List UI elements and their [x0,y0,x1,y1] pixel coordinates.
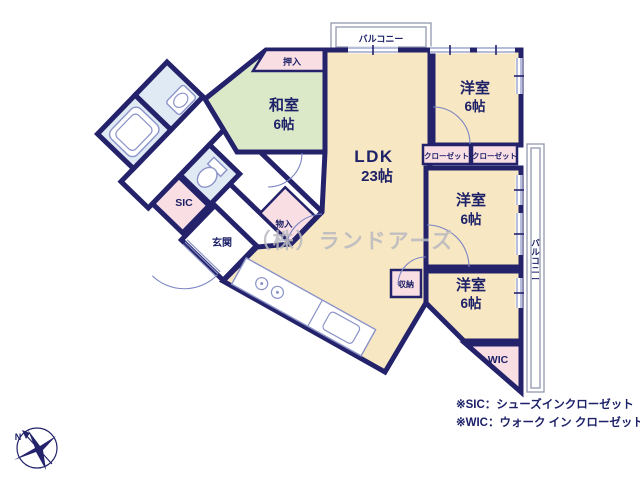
floor-plan-svg: バルコニー [0,0,640,480]
label-closet-b: クローゼット [472,151,517,161]
label-genkan: 玄関 [212,236,232,249]
label-sic: SIC [175,197,193,209]
note-wic: ※WIC：ウォーク イン クローゼット [456,415,640,429]
label-washitsu: 和室 [269,96,299,114]
label-bedroom-mid-size: 6帖 [460,211,482,227]
label-bedroom-mid: 洋室 [456,191,486,209]
balcony-top-label: バルコニー [359,34,404,44]
label-washitsu-size: 6帖 [273,116,295,132]
label-bedroom-btm-size: 6帖 [460,295,482,311]
label-bedroom-top-size: 6帖 [464,98,486,114]
label-closet-a: クローゼット [424,151,469,161]
label-ldk: LDK [354,147,393,166]
floor-plan-page: バルコニー [0,0,640,480]
wic-closet [466,344,521,392]
room-bedroom-top [433,50,521,145]
label-bedroom-top: 洋室 [460,79,490,97]
label-shuno: 収納 [398,279,414,289]
label-bedroom-btm: 洋室 [456,276,486,294]
note-sic: ※SIC：シューズインクローゼット [456,397,634,411]
label-oshiire: 押入 [283,56,301,67]
label-monoire: 物入 [275,219,293,229]
label-wic: WIC [488,354,509,366]
label-balcony-right: バルコニー [531,238,540,284]
compass-n-label: N [15,432,22,442]
compass-icon: N [14,428,57,470]
label-ldk-size: 23帖 [361,167,393,185]
watermark: （株）ランドアーズ [250,229,455,253]
